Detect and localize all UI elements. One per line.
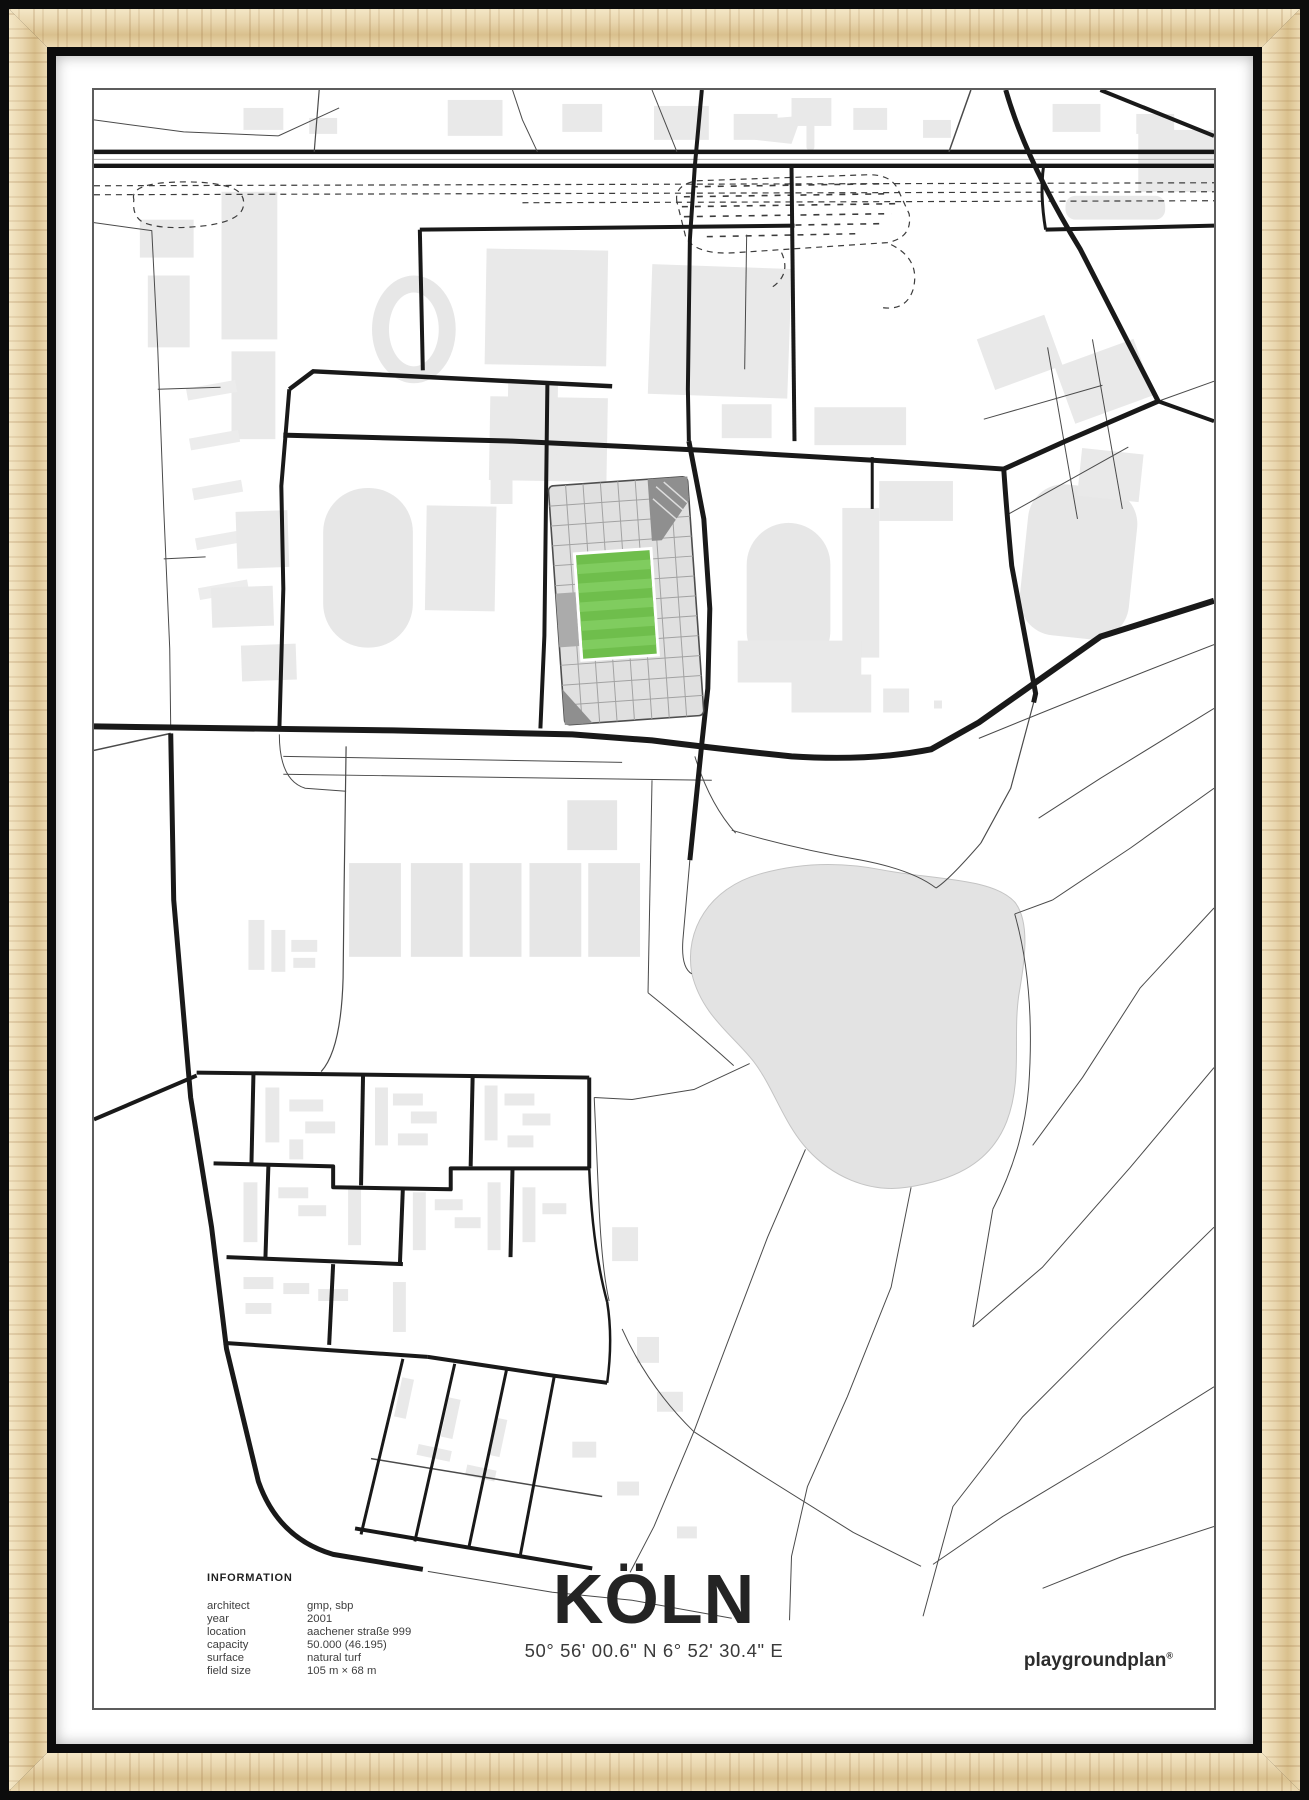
framed-poster: INFORMATION architect gmp, sbp year 2001… (0, 0, 1309, 1800)
info-row-value: 105 m × 68 m (307, 1665, 376, 1678)
buildings-layer (140, 98, 1214, 1538)
arena-east (1016, 481, 1141, 643)
info-row: field size 105 m × 68 m (207, 1665, 411, 1678)
info-row-label: field size (207, 1665, 307, 1678)
track-oval-west (323, 488, 413, 648)
title-block: KÖLN 50° 56' 00.6" N 6° 52' 30.4" E (94, 1564, 1214, 1662)
poster-content: INFORMATION architect gmp, sbp year 2001… (92, 88, 1216, 1710)
tennis-courts (349, 800, 640, 957)
stadium-map (94, 90, 1214, 1708)
stadium (548, 476, 704, 725)
frame-side-left (9, 9, 47, 1791)
frame-side-top (9, 9, 1300, 47)
stadium-pitch (576, 550, 657, 659)
frame-side-right (1262, 9, 1300, 1791)
lake (690, 865, 1025, 1189)
brand-registered-mark: ® (1166, 1651, 1173, 1661)
poster-title: KÖLN (94, 1564, 1214, 1634)
brand-name: playgroundplan (1024, 1650, 1167, 1671)
brand-logo: playgroundplan® (1024, 1650, 1173, 1672)
frame-side-bottom (9, 1753, 1300, 1791)
